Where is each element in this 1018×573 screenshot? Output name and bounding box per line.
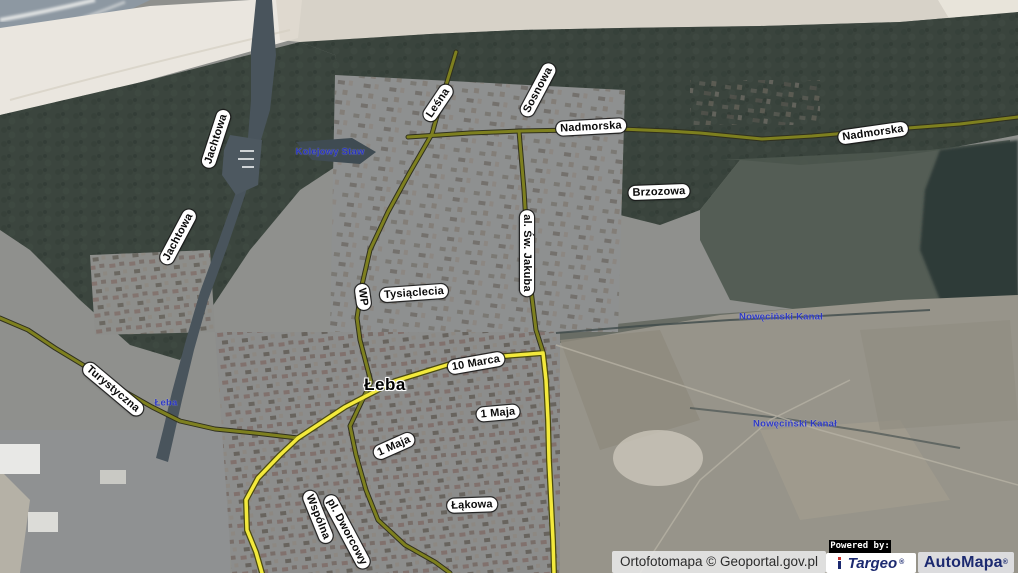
port-area [0, 430, 230, 573]
targeo-logo-text: Targeo [848, 555, 897, 572]
fields [548, 295, 1018, 573]
map-viewport[interactable]: JachtowaJachtowaLeśnaSosnowaNadmorskaNad… [0, 0, 1018, 573]
orthophoto-attribution: Ortofotomapa © Geoportal.gov.pl [612, 551, 826, 573]
automapa-logo[interactable]: AutoMapa ® [918, 552, 1014, 573]
targeo-mark-icon [838, 557, 845, 569]
targeo-logo[interactable]: Targeo ® [826, 553, 916, 573]
powered-by-label: Powered by: [829, 540, 891, 553]
satellite-imagery [0, 0, 1018, 573]
automapa-logo-text: AutoMapa [924, 554, 1003, 572]
